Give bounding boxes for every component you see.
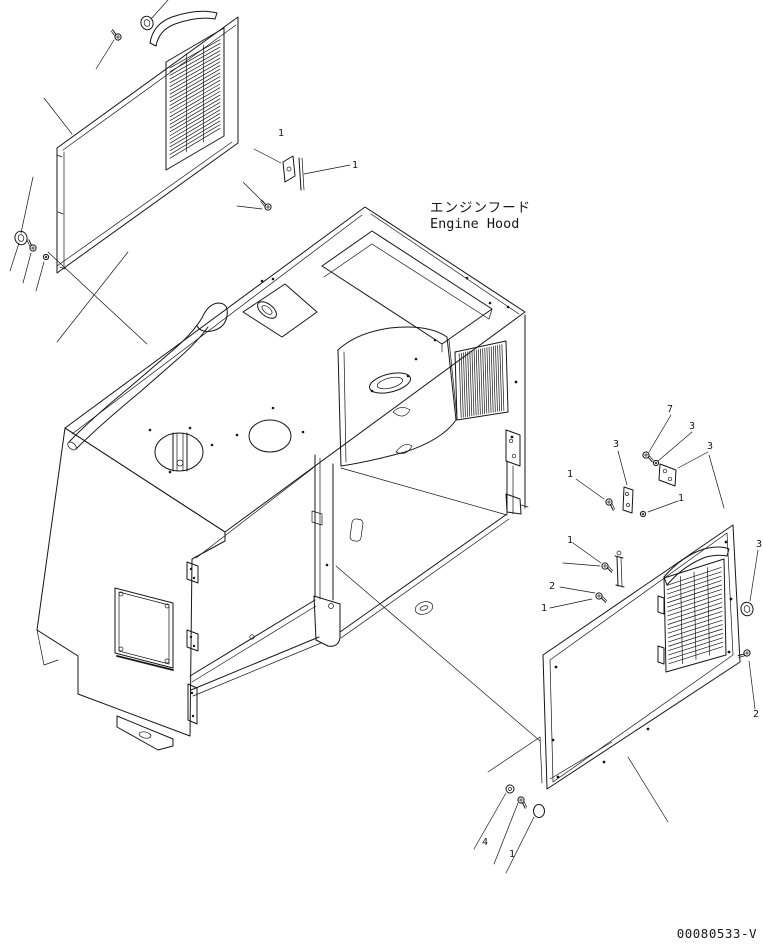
callout-number: 1 <box>567 469 573 480</box>
callout-number: 4 <box>482 837 488 848</box>
bolt <box>595 592 609 602</box>
corner-cover <box>338 327 457 466</box>
part-title-japanese: エンジンフード <box>430 200 531 216</box>
door-mount-parts <box>506 451 754 818</box>
door-grille-dividers <box>681 568 710 664</box>
top-opening <box>322 231 492 352</box>
hinges <box>187 562 198 724</box>
washer <box>43 254 48 259</box>
leader-lines <box>474 415 758 873</box>
rear-right-pillar <box>506 315 528 514</box>
hood-side-grille <box>459 344 504 417</box>
callout-number: 3 <box>756 539 762 550</box>
drawing-number: 00080533-V <box>677 926 757 941</box>
callout-number: 1 <box>278 128 284 139</box>
callout-number: 7 <box>667 404 673 415</box>
callout-number: 1 <box>678 493 684 504</box>
callout-number: 2 <box>753 709 759 720</box>
grommet <box>740 601 755 617</box>
left-panel-fasteners <box>10 0 168 344</box>
callout-number: 1 <box>352 160 358 171</box>
engine-hood <box>37 207 528 750</box>
callout-number: 2 <box>549 581 555 592</box>
callout-number: 3 <box>613 439 619 450</box>
bolt <box>516 796 530 809</box>
bottom-rails <box>190 514 509 696</box>
access-panel <box>115 588 173 670</box>
cap-ring <box>534 805 545 818</box>
left-panel-handle <box>150 11 217 46</box>
parts-diagram-page: エンジンフード Engine Hood 00080533-V 117333111… <box>0 0 763 952</box>
callout-number: 3 <box>707 441 713 452</box>
callout-number: 1 <box>567 535 573 546</box>
left-panel-latch-parts <box>237 149 350 211</box>
right-door-panel <box>543 525 740 789</box>
top-holes <box>155 420 291 471</box>
bolt <box>109 29 123 41</box>
callout-number: 1 <box>541 603 547 614</box>
bolt <box>642 451 656 462</box>
bolt <box>604 498 618 511</box>
bolt <box>259 200 273 211</box>
callout-number: 3 <box>689 421 695 432</box>
leader-line <box>336 566 540 741</box>
top-hatch <box>243 278 317 337</box>
washer <box>640 511 645 516</box>
bolt <box>601 562 615 572</box>
door-stay-rod <box>615 551 624 587</box>
part-title-english: Engine Hood <box>430 216 519 232</box>
engine-hood-exploded-diagram: エンジンフード Engine Hood 00080533-V 117333111… <box>0 0 763 952</box>
callout-number: 1 <box>509 849 515 860</box>
front-right-pillar <box>312 455 340 646</box>
left-panel-grille <box>170 40 220 159</box>
left-door-panel <box>57 11 238 273</box>
